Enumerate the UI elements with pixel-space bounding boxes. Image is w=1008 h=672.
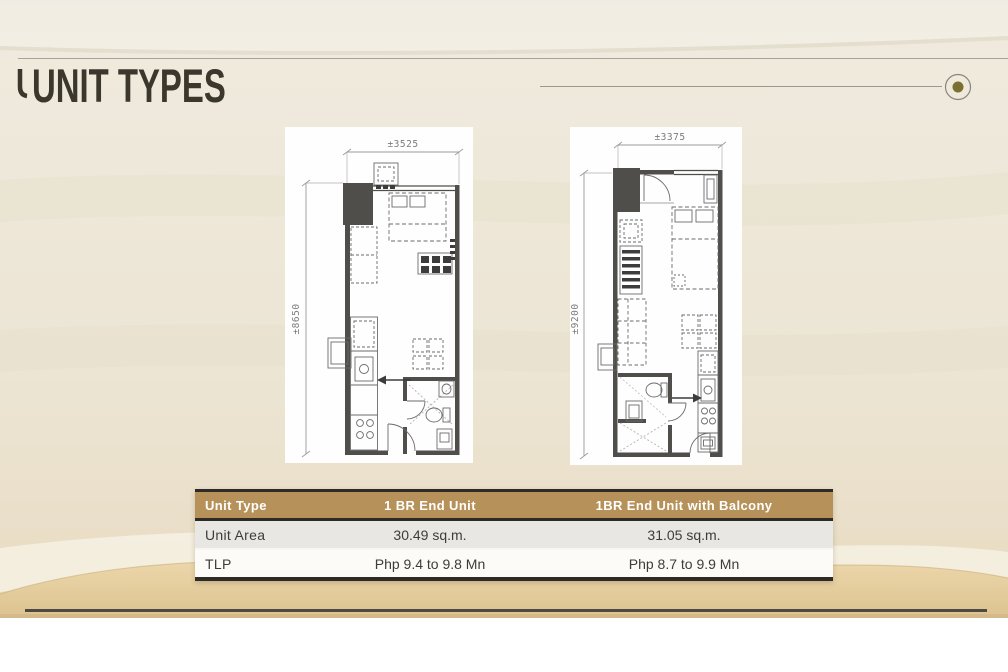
tlp-value-plan-b: Php 8.7 to 9.9 Mn: [535, 556, 833, 572]
corner-dot-icon: [953, 82, 964, 93]
table-row-unit-area: Unit Area 30.49 sq.m. 31.05 sq.m.: [195, 521, 833, 550]
tlp-value-plan-a: Php 9.4 to 9.8 Mn: [325, 556, 535, 572]
plan-b-height-dimension: ±9200: [570, 303, 581, 334]
header-unit-type: Unit Type: [195, 498, 325, 513]
plan-b-entry-arrow-icon: [672, 394, 702, 403]
table-header-row: Unit Type 1 BR End Unit 1BR End Unit wit…: [195, 492, 833, 521]
title-block: UNIT TYPES: [12, 64, 309, 108]
header-1br-end-unit: 1 BR End Unit: [325, 498, 535, 513]
page-title: UNIT TYPES: [32, 64, 226, 108]
table-row-tlp: TLP Php 9.4 to 9.8 Mn Php 8.7 to 9.9 Mn: [195, 550, 833, 577]
unit-area-value-plan-a: 30.49 sq.m.: [325, 527, 535, 543]
unit-area-label: Unit Area: [195, 527, 325, 543]
floorplan-1br-end-unit-with-balcony: ±3375 ±9200: [570, 127, 742, 465]
plan-a-width-dimension: ±3525: [387, 139, 418, 150]
unit-comparison-table: Unit Type 1 BR End Unit 1BR End Unit wit…: [195, 489, 833, 581]
presentation-slide: UNIT TYPES ±3525 ±8650: [0, 0, 1008, 618]
screenshot-canvas: UNIT TYPES ±3525 ±8650: [0, 0, 1008, 672]
plan-a-height-dimension: ±8650: [291, 303, 302, 334]
bottom-rule-line: [25, 609, 987, 612]
header-accent-line: [540, 86, 942, 87]
unit-area-value-plan-b: 31.05 sq.m.: [535, 527, 833, 543]
header-1br-end-unit-with-balcony: 1BR End Unit with Balcony: [535, 498, 833, 513]
title-bracket-icon: [12, 66, 28, 100]
plan-b-width-dimension: ±3375: [654, 132, 685, 143]
floorplan-1br-end-unit: ±3525 ±8650: [285, 127, 473, 463]
tlp-label: TLP: [195, 556, 325, 572]
corner-dot-ornament: [941, 70, 975, 104]
